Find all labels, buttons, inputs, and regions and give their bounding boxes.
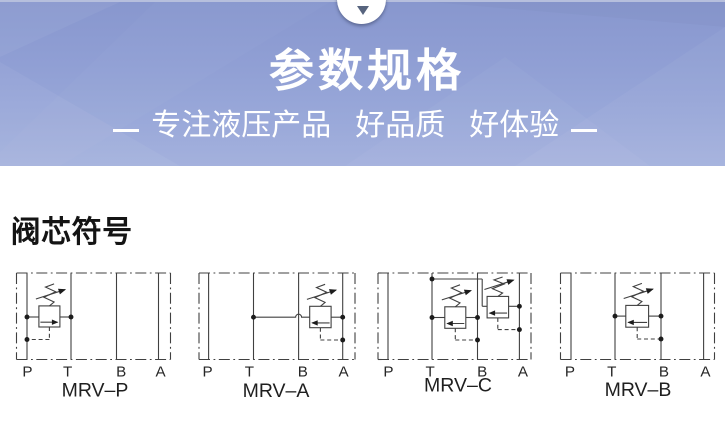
svg-text:A: A <box>700 364 711 381</box>
svg-text:T: T <box>63 364 72 381</box>
svg-text:B: B <box>659 364 669 381</box>
svg-text:T: T <box>607 364 616 381</box>
svg-text:P: P <box>22 364 32 381</box>
svg-text:MRV–C: MRV–C <box>424 375 492 397</box>
svg-text:P: P <box>203 364 213 381</box>
svg-text:A: A <box>518 364 529 381</box>
svg-text:MRV–A: MRV–A <box>243 380 310 402</box>
svg-text:A: A <box>339 364 350 381</box>
svg-text:P: P <box>383 364 393 381</box>
svg-text:MRV–P: MRV–P <box>62 380 129 402</box>
svg-text:T: T <box>245 364 254 381</box>
svg-text:B: B <box>298 364 308 381</box>
svg-text:MRV–B: MRV–B <box>605 379 672 401</box>
svg-text:P: P <box>565 364 575 381</box>
svg-text:A: A <box>156 364 167 381</box>
svg-text:B: B <box>116 364 126 381</box>
